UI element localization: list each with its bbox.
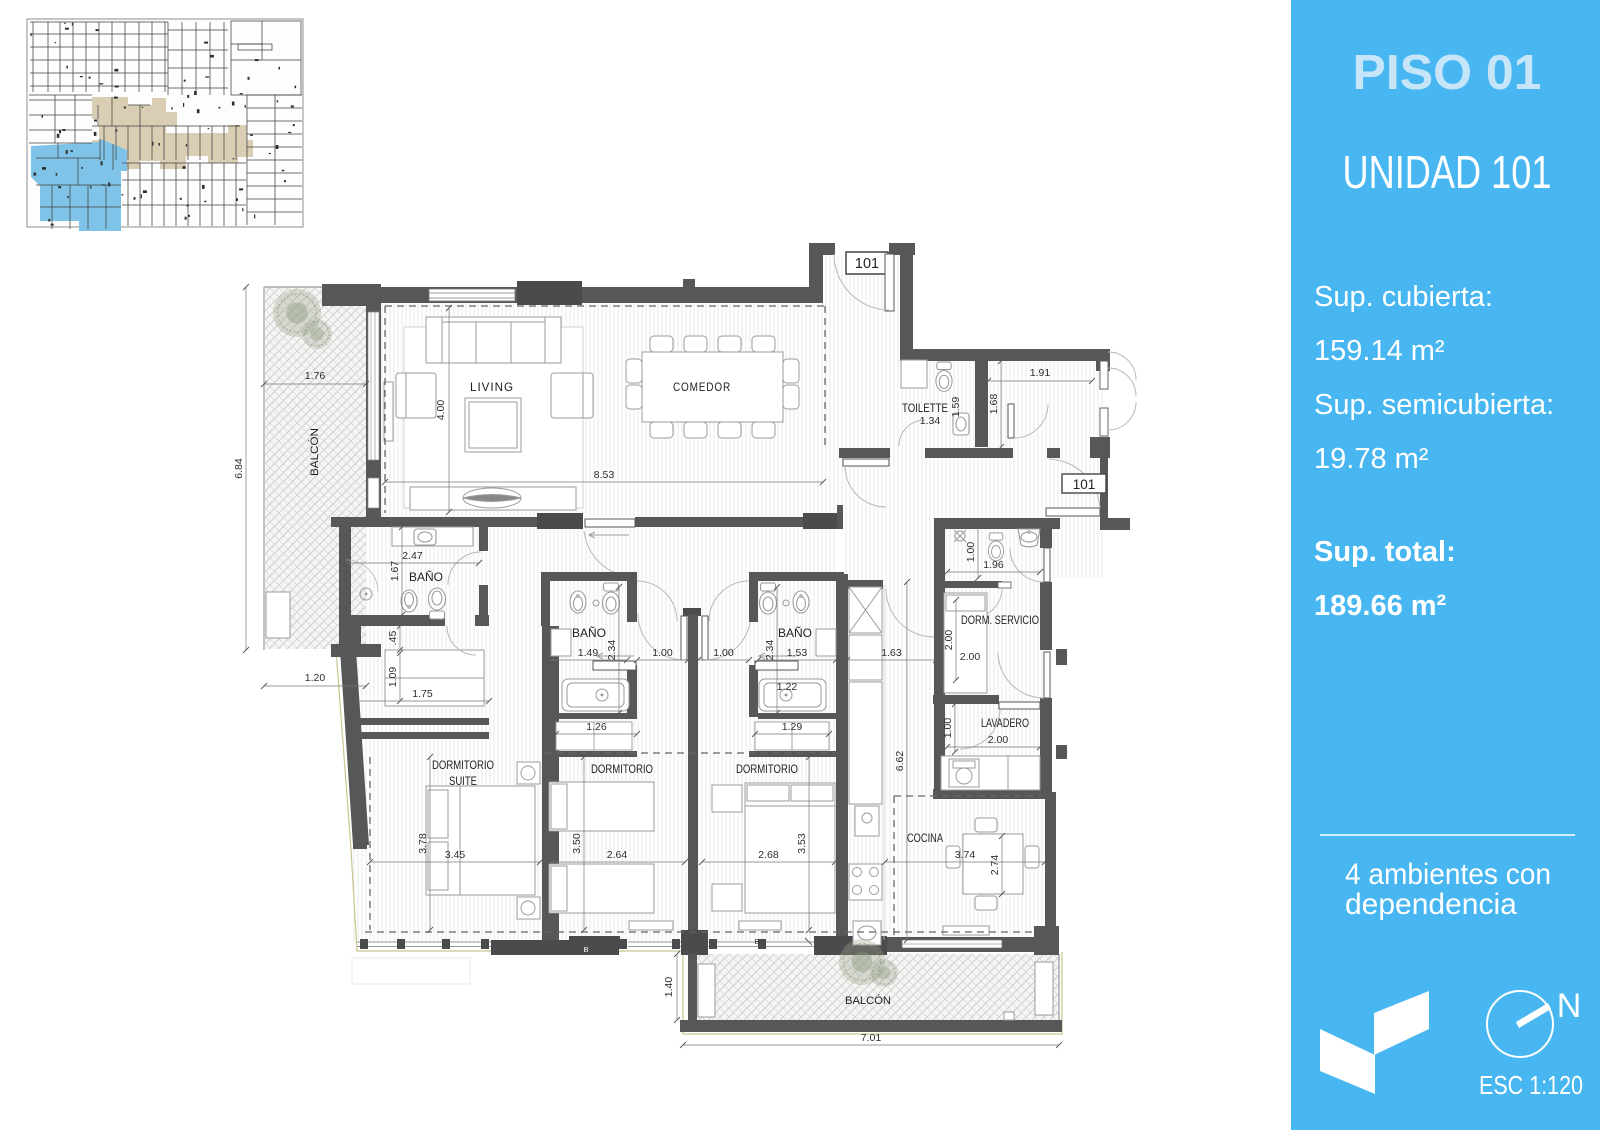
svg-text:BAÑO: BAÑO xyxy=(778,627,812,640)
svg-text:1.22: 1.22 xyxy=(777,681,798,693)
svg-text:1.49: 1.49 xyxy=(578,647,599,659)
svg-text:LIVING: LIVING xyxy=(470,380,514,394)
svg-text:BAÑO: BAÑO xyxy=(409,571,443,584)
svg-text:2.00: 2.00 xyxy=(988,734,1009,746)
svg-text:ESC 1:120: ESC 1:120 xyxy=(1479,1070,1583,1100)
svg-text:BALCÓN: BALCÓN xyxy=(845,994,891,1007)
svg-text:Sup. total:: Sup. total: xyxy=(1314,536,1456,568)
svg-text:1.00: 1.00 xyxy=(652,647,673,659)
svg-text:BAÑO: BAÑO xyxy=(572,627,606,640)
svg-text:1.67: 1.67 xyxy=(389,561,401,582)
svg-text:1.34: 1.34 xyxy=(920,415,941,427)
svg-text:Sup. semicubierta:: Sup. semicubierta: xyxy=(1314,389,1554,421)
svg-text:DORMITORIO: DORMITORIO xyxy=(432,760,494,772)
svg-text:6.62: 6.62 xyxy=(894,751,906,772)
svg-text:1.09: 1.09 xyxy=(387,667,399,688)
svg-text:2.00: 2.00 xyxy=(960,651,981,663)
svg-text:19.78 m²: 19.78 m² xyxy=(1314,443,1429,475)
svg-text:DORMITORIO: DORMITORIO xyxy=(591,764,653,776)
svg-text:1.76: 1.76 xyxy=(305,370,326,382)
svg-text:2.68: 2.68 xyxy=(758,849,779,861)
svg-text:101: 101 xyxy=(1073,477,1096,492)
svg-text:PISO 01: PISO 01 xyxy=(1353,46,1542,100)
svg-text:159.14 m²: 159.14 m² xyxy=(1314,335,1445,367)
svg-text:DORM. SERVICIO: DORM. SERVICIO xyxy=(961,615,1039,627)
svg-text:TOILETTE: TOILETTE xyxy=(902,403,948,415)
svg-text:189.66 m²: 189.66 m² xyxy=(1314,590,1447,622)
svg-text:3.78: 3.78 xyxy=(417,833,429,854)
svg-text:B: B xyxy=(583,945,588,954)
svg-text:2.00: 2.00 xyxy=(943,630,955,651)
svg-text:2.47: 2.47 xyxy=(402,550,423,562)
svg-text:1.63: 1.63 xyxy=(881,647,902,659)
svg-text:4.00: 4.00 xyxy=(435,400,447,421)
svg-text:101: 101 xyxy=(855,256,879,272)
svg-text:1.20: 1.20 xyxy=(305,672,326,684)
svg-text:B: B xyxy=(754,937,759,946)
svg-text:Sup. cubierta:: Sup. cubierta: xyxy=(1314,281,1493,313)
svg-text:1.40: 1.40 xyxy=(663,977,675,998)
svg-text:2.34: 2.34 xyxy=(606,640,618,661)
svg-text:DORMITORIO: DORMITORIO xyxy=(736,764,798,776)
svg-text:1.29: 1.29 xyxy=(782,721,803,733)
svg-text:1.59: 1.59 xyxy=(950,397,962,418)
svg-text:dependencia: dependencia xyxy=(1345,888,1517,921)
svg-text:3.53: 3.53 xyxy=(796,833,808,854)
svg-text:N: N xyxy=(1557,987,1582,1025)
svg-text:4 ambientes con: 4 ambientes con xyxy=(1345,858,1551,891)
svg-text:2.34: 2.34 xyxy=(764,640,776,661)
svg-text:1.00: 1.00 xyxy=(713,647,734,659)
svg-text:1.26: 1.26 xyxy=(586,721,607,733)
svg-text:1.00: 1.00 xyxy=(965,542,977,563)
svg-text:1.91: 1.91 xyxy=(1030,367,1051,379)
svg-text:1.00: 1.00 xyxy=(942,718,954,739)
svg-text:3.45: 3.45 xyxy=(445,849,466,861)
svg-text:.45: .45 xyxy=(387,631,399,646)
svg-text:BALCÓN: BALCÓN xyxy=(308,428,321,476)
svg-text:1.53: 1.53 xyxy=(787,647,808,659)
svg-text:8.53: 8.53 xyxy=(594,469,615,481)
svg-text:COCINA: COCINA xyxy=(907,833,943,845)
svg-text:UNIDAD 101: UNIDAD 101 xyxy=(1343,146,1552,198)
svg-text:2.74: 2.74 xyxy=(989,855,1001,876)
svg-text:SUITE: SUITE xyxy=(449,776,477,788)
svg-text:LAVADERO: LAVADERO xyxy=(981,718,1029,730)
svg-text:1.75: 1.75 xyxy=(412,688,433,700)
svg-text:3.74: 3.74 xyxy=(955,849,976,861)
svg-text:3.50: 3.50 xyxy=(571,833,583,854)
svg-text:1.68: 1.68 xyxy=(988,394,1000,415)
svg-text:1.96: 1.96 xyxy=(983,559,1004,571)
svg-text:COMEDOR: COMEDOR xyxy=(673,380,731,394)
svg-text:2.64: 2.64 xyxy=(607,849,628,861)
svg-text:6.84: 6.84 xyxy=(233,458,245,479)
svg-text:7.01: 7.01 xyxy=(861,1032,882,1044)
